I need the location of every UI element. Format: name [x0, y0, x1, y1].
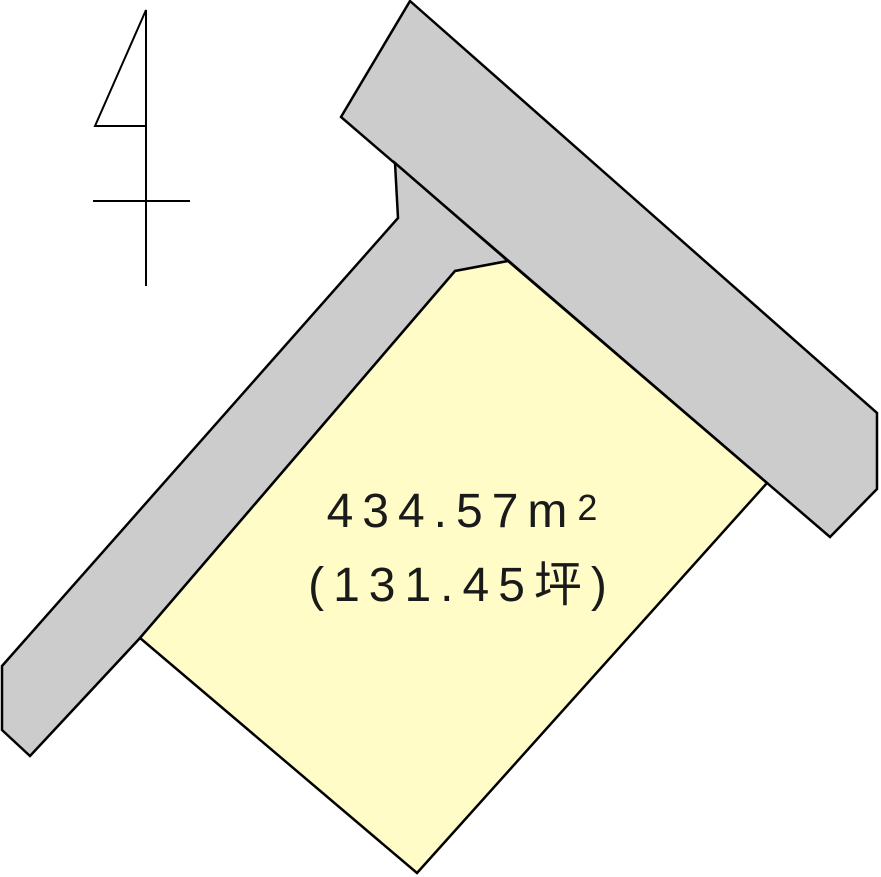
area-sqm-unit-exponent: 2 — [577, 487, 597, 528]
parcel-area-label: 434.57m2 (131.45坪) — [43, 471, 881, 623]
area-sqm-value: 434.57 — [327, 485, 528, 538]
area-sqm-unit: m2 — [527, 485, 597, 538]
north-arrow-icon — [93, 10, 190, 286]
area-tsubo-text: (131.45坪) — [43, 549, 881, 623]
plot-diagram-canvas: 434.57m2 (131.45坪) — [0, 0, 881, 877]
north-arrow-head — [95, 10, 146, 126]
plot-diagram — [0, 0, 881, 877]
area-sqm-text: 434.57m2 — [43, 471, 881, 549]
area-sqm-unit-base: m — [527, 485, 576, 538]
